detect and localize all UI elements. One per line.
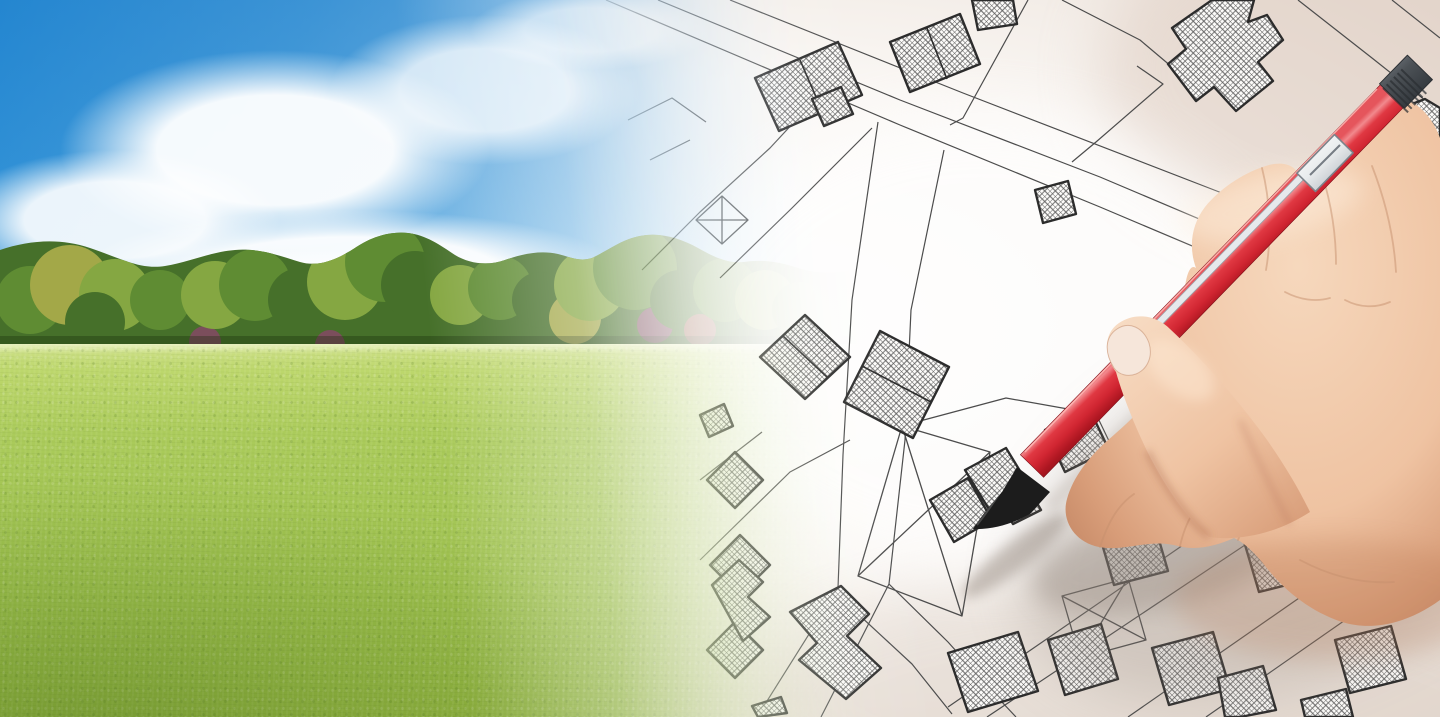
scene-field-to-cadastral-map xyxy=(0,0,1440,717)
thumb-nail xyxy=(1107,325,1150,375)
hand-with-pencil xyxy=(0,0,1440,717)
